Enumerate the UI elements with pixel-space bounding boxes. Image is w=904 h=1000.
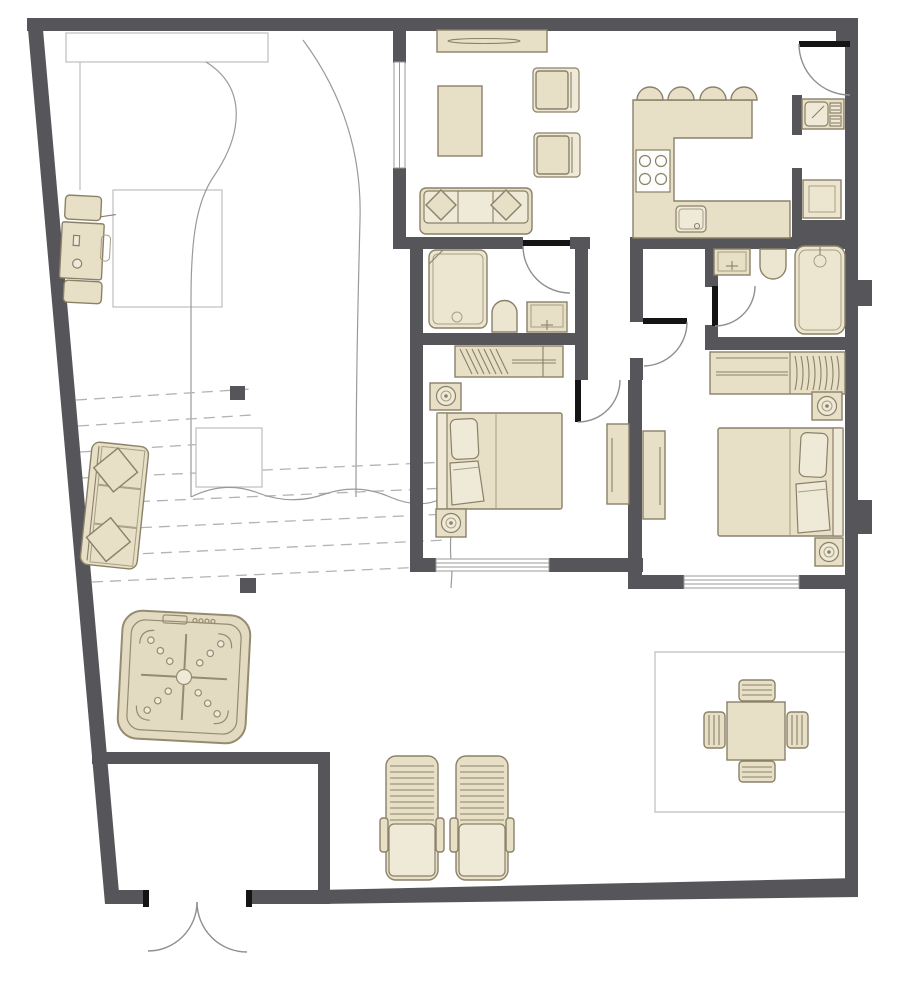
double-entry-doors <box>143 890 252 952</box>
double-bed <box>437 413 562 509</box>
stair-landing <box>196 428 262 487</box>
nightstand-with-lamp <box>812 392 842 420</box>
bar-stools <box>637 87 757 100</box>
wall-pier-exterior-1 <box>858 280 872 306</box>
dining-table <box>727 702 785 760</box>
sofa <box>420 188 532 234</box>
bedroom1-door <box>575 380 620 422</box>
utility-niche <box>802 99 844 218</box>
cooktop <box>636 150 670 192</box>
sun-lounger <box>450 756 514 880</box>
outdoor-dining-set <box>704 680 808 782</box>
pillow <box>450 418 479 459</box>
armchair <box>534 133 580 177</box>
vanity-sink <box>527 302 567 332</box>
wall-corridor-left <box>575 249 588 380</box>
wall-bed1-bottom-b <box>549 558 643 572</box>
nightstand-with-lamp <box>815 538 843 566</box>
bathtub <box>795 246 845 334</box>
wall-mid-pier <box>570 237 590 249</box>
sun-lounger <box>380 756 444 880</box>
shower-tub <box>429 250 487 328</box>
vanity-sink <box>714 249 750 275</box>
fence-post-2 <box>240 578 256 593</box>
bedroom-1 <box>430 346 629 537</box>
entry-door <box>799 41 850 95</box>
wall-pier-lobby <box>630 358 643 380</box>
toilet <box>492 301 517 333</box>
path-curve-outer <box>303 40 360 497</box>
hot-tub <box>117 610 252 745</box>
wall-bottom <box>318 878 858 904</box>
double-bed <box>718 428 843 536</box>
armchair <box>533 68 579 112</box>
wardrobe <box>710 352 845 394</box>
pillow <box>799 432 828 477</box>
utility-sink <box>802 99 844 129</box>
wardrobe <box>455 346 563 377</box>
wall-bath1-bottom <box>410 333 575 345</box>
outdoor-chair <box>739 761 775 782</box>
bathroom-1 <box>429 250 567 332</box>
bedroom-2 <box>643 352 845 566</box>
wall-bed1-left <box>410 237 423 558</box>
wall-bed1-bottom-a <box>410 558 436 572</box>
wall-utility-bottom <box>792 220 845 237</box>
wall-pier-exterior-2 <box>858 500 872 534</box>
kitchen <box>633 87 790 238</box>
wall-top <box>27 18 858 31</box>
dresser <box>643 431 665 519</box>
floor-plan-page <box>0 0 904 1000</box>
outdoor-chair <box>787 712 808 748</box>
nightstand-with-lamp <box>430 383 461 410</box>
living-window <box>394 62 405 168</box>
wall-storage-right <box>318 752 330 902</box>
dresser <box>607 424 629 504</box>
lobby-door <box>643 318 687 366</box>
fence-post-1 <box>230 386 245 400</box>
outdoor-chair <box>704 712 725 748</box>
sideboard <box>437 30 547 52</box>
wall-storage-bottom-a <box>106 890 146 904</box>
living-room <box>420 30 580 234</box>
wall-corridor-right <box>630 249 643 322</box>
bbq-pad <box>113 190 222 307</box>
wall-bed2-bottom-b <box>799 575 845 589</box>
coffee-table <box>438 86 482 156</box>
wall-bath2-bottom <box>705 337 845 350</box>
nightstand-with-lamp <box>436 509 466 537</box>
bedroom2-window <box>684 576 799 588</box>
wall-bedroom-divider <box>628 380 642 589</box>
wall-storage-bottom-b <box>250 890 330 904</box>
outdoor-sofa <box>80 441 150 569</box>
wall-bed2-bottom-a <box>630 575 684 589</box>
kitchen-sink <box>676 206 706 232</box>
floor-plan <box>0 0 904 1000</box>
washer <box>803 180 841 218</box>
toilet <box>760 249 786 279</box>
wall-utility-pier-1 <box>792 95 802 135</box>
bathroom2-door <box>712 286 755 326</box>
wall-living-left-lower <box>393 168 406 240</box>
wall-right <box>845 31 858 891</box>
terrace-pad-top <box>66 33 268 62</box>
outdoor-chair <box>739 680 775 701</box>
bedroom1-window <box>436 559 549 571</box>
bbq-grill <box>58 195 117 305</box>
bathroom1-door <box>523 240 570 293</box>
wall-living-left-upper <box>393 18 406 63</box>
wall-storage-top <box>92 752 330 764</box>
